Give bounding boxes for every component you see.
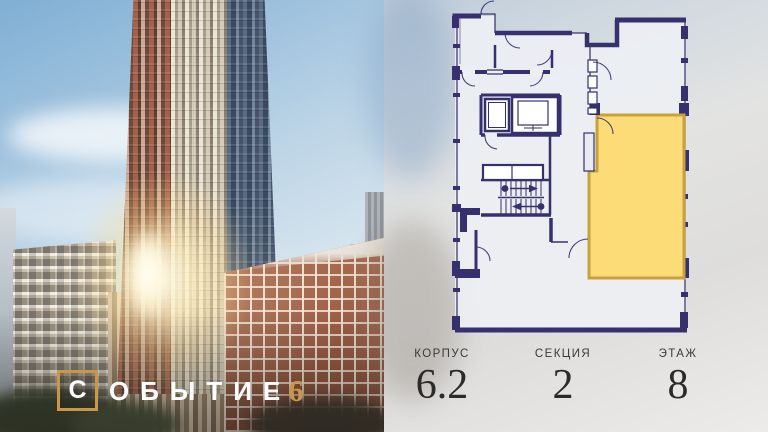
unit-info-row: КОРПУС 6.2 СЕКЦИЯ 2 ЭТАЖ 8 — [384, 348, 768, 428]
logo-letter-box: С — [57, 370, 98, 411]
info-etazh-label: ЭТАЖ — [623, 348, 733, 360]
apartment-card: С ОБЫТИЕ 6 — [0, 0, 768, 432]
elevator-shaft-icon — [485, 99, 509, 131]
logo-boxed-letter: С — [68, 378, 86, 403]
floor-plan — [384, 0, 768, 342]
info-sektsiya-label: СЕКЦИЯ — [508, 348, 618, 360]
floorplan-panel: КОРПУС 6.2 СЕКЦИЯ 2 ЭТАЖ 8 — [384, 0, 768, 432]
logo-text: ОБЫТИЕ — [109, 378, 291, 404]
info-korpus: КОРПУС 6.2 — [387, 348, 497, 408]
info-sektsiya: СЕКЦИЯ 2 — [508, 348, 618, 408]
building-photo: С ОБЫТИЕ 6 — [0, 0, 384, 432]
info-korpus-label: КОРПУС — [387, 348, 497, 360]
highlighted-apartment[interactable] — [589, 115, 684, 278]
logo-number: 6 — [288, 375, 304, 406]
brand-logo: С ОБЫТИЕ 6 — [57, 370, 304, 411]
info-etazh-value: 8 — [623, 363, 733, 408]
shaft-notch — [584, 133, 594, 171]
photo-vignette — [0, 0, 384, 432]
closet — [483, 165, 543, 180]
elevator-shaft-icon — [512, 97, 558, 133]
info-korpus-value: 6.2 — [387, 363, 497, 408]
info-etazh: ЭТАЖ 8 — [623, 348, 733, 408]
info-sektsiya-value: 2 — [508, 363, 618, 408]
